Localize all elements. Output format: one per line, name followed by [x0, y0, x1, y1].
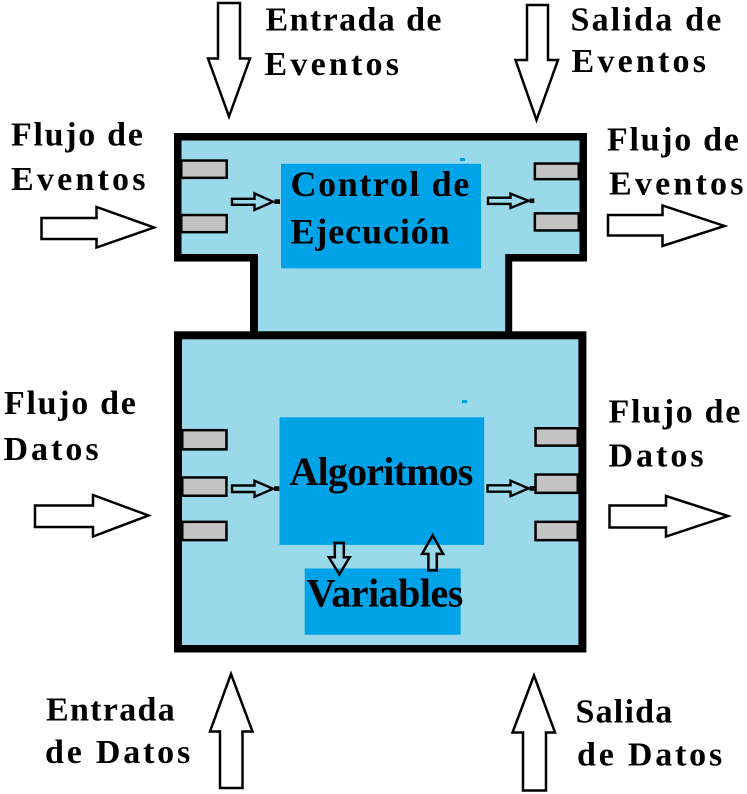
svg-text:Control de: Control de: [291, 164, 471, 204]
svg-text:Flujo de: Flujo de: [607, 121, 741, 158]
svg-text:de Datos: de Datos: [577, 737, 725, 774]
svg-text:Eventos: Eventos: [11, 161, 149, 198]
svg-text:Eventos: Eventos: [609, 166, 747, 203]
svg-text:Entrada de: Entrada de: [266, 1, 443, 38]
svg-text:Flujo de: Flujo de: [609, 393, 743, 430]
svg-text:Datos: Datos: [609, 437, 707, 474]
svg-text:Entrada: Entrada: [46, 692, 176, 729]
svg-text:Eventos: Eventos: [572, 43, 710, 80]
svg-text:Flujo de: Flujo de: [4, 385, 138, 422]
svg-text:Datos: Datos: [4, 431, 102, 468]
svg-text:Salida: Salida: [576, 693, 674, 730]
svg-text:de Datos: de Datos: [45, 734, 193, 771]
svg-text:Salida de: Salida de: [571, 1, 724, 38]
svg-text:Flujo de: Flujo de: [11, 117, 145, 154]
svg-text:Algoritmos: Algoritmos: [290, 449, 473, 494]
svg-text:Variables: Variables: [307, 570, 463, 615]
svg-text:Ejecución: Ejecución: [291, 211, 451, 251]
svg-text:Eventos: Eventos: [265, 46, 403, 83]
